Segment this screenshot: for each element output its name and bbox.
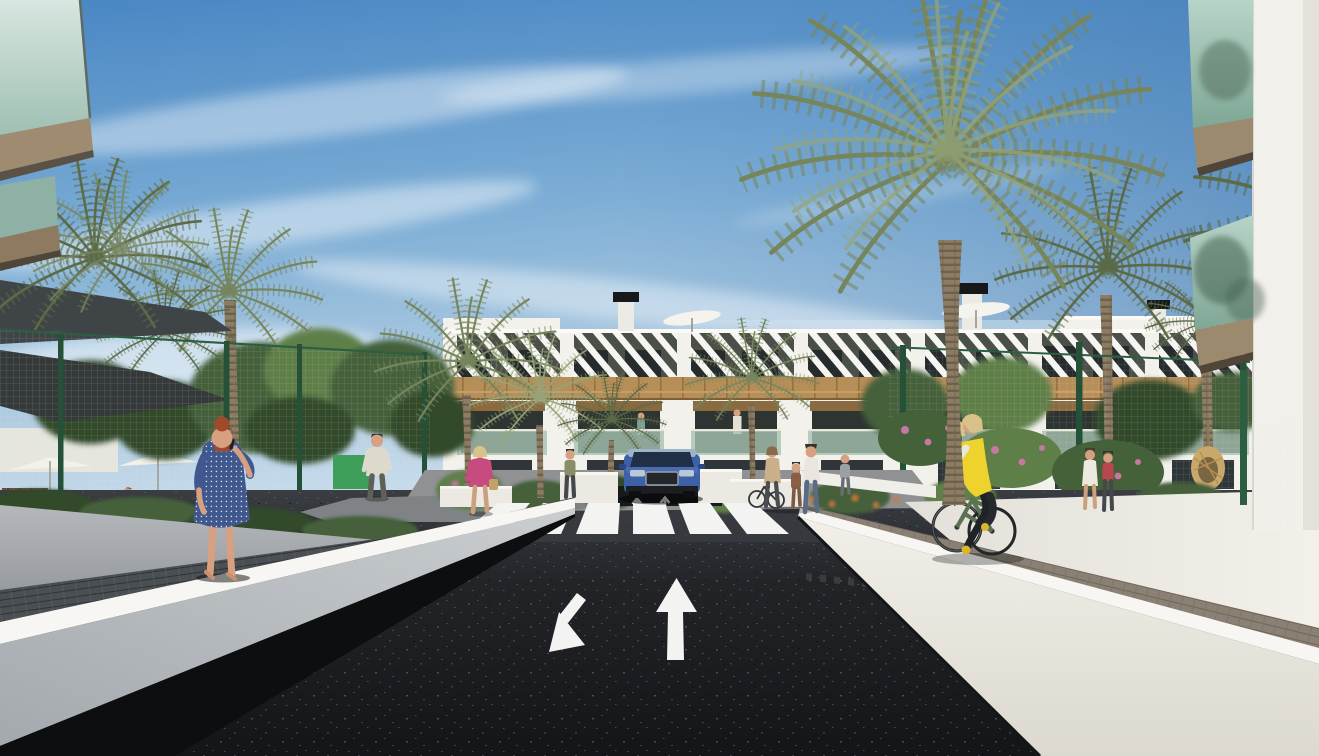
balcony-glass-right-upper xyxy=(1188,0,1253,176)
blue-suv xyxy=(619,449,705,505)
architectural-rendering xyxy=(0,0,1319,756)
fence-post xyxy=(1240,370,1247,505)
rendering-canvas xyxy=(0,0,1319,756)
balcony-glass-left xyxy=(0,0,90,135)
